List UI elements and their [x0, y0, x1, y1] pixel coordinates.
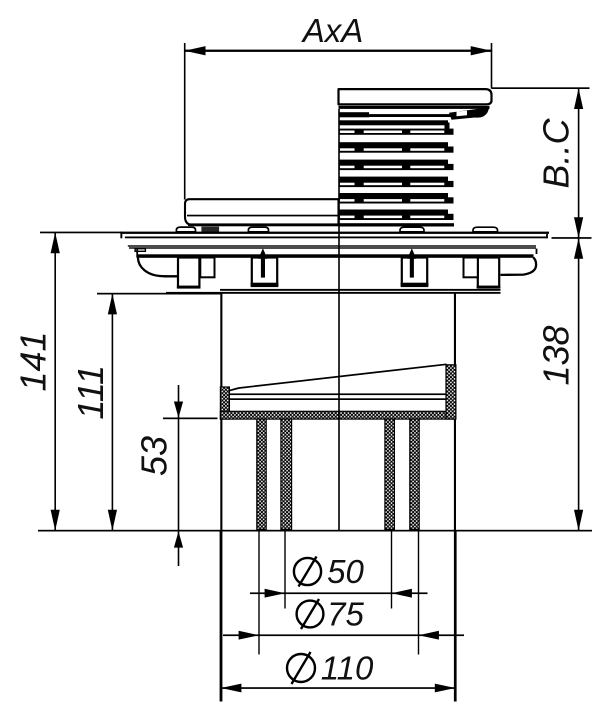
svg-text:141: 141: [13, 331, 54, 391]
svg-text:138: 138: [536, 325, 577, 385]
svg-text:111: 111: [70, 365, 111, 420]
svg-text:50: 50: [327, 553, 364, 590]
svg-text:AxA: AxA: [301, 12, 364, 49]
svg-text:110: 110: [321, 650, 374, 687]
svg-text:B..C: B..C: [536, 117, 577, 188]
svg-text:75: 75: [327, 596, 364, 633]
svg-text:53: 53: [134, 436, 175, 476]
